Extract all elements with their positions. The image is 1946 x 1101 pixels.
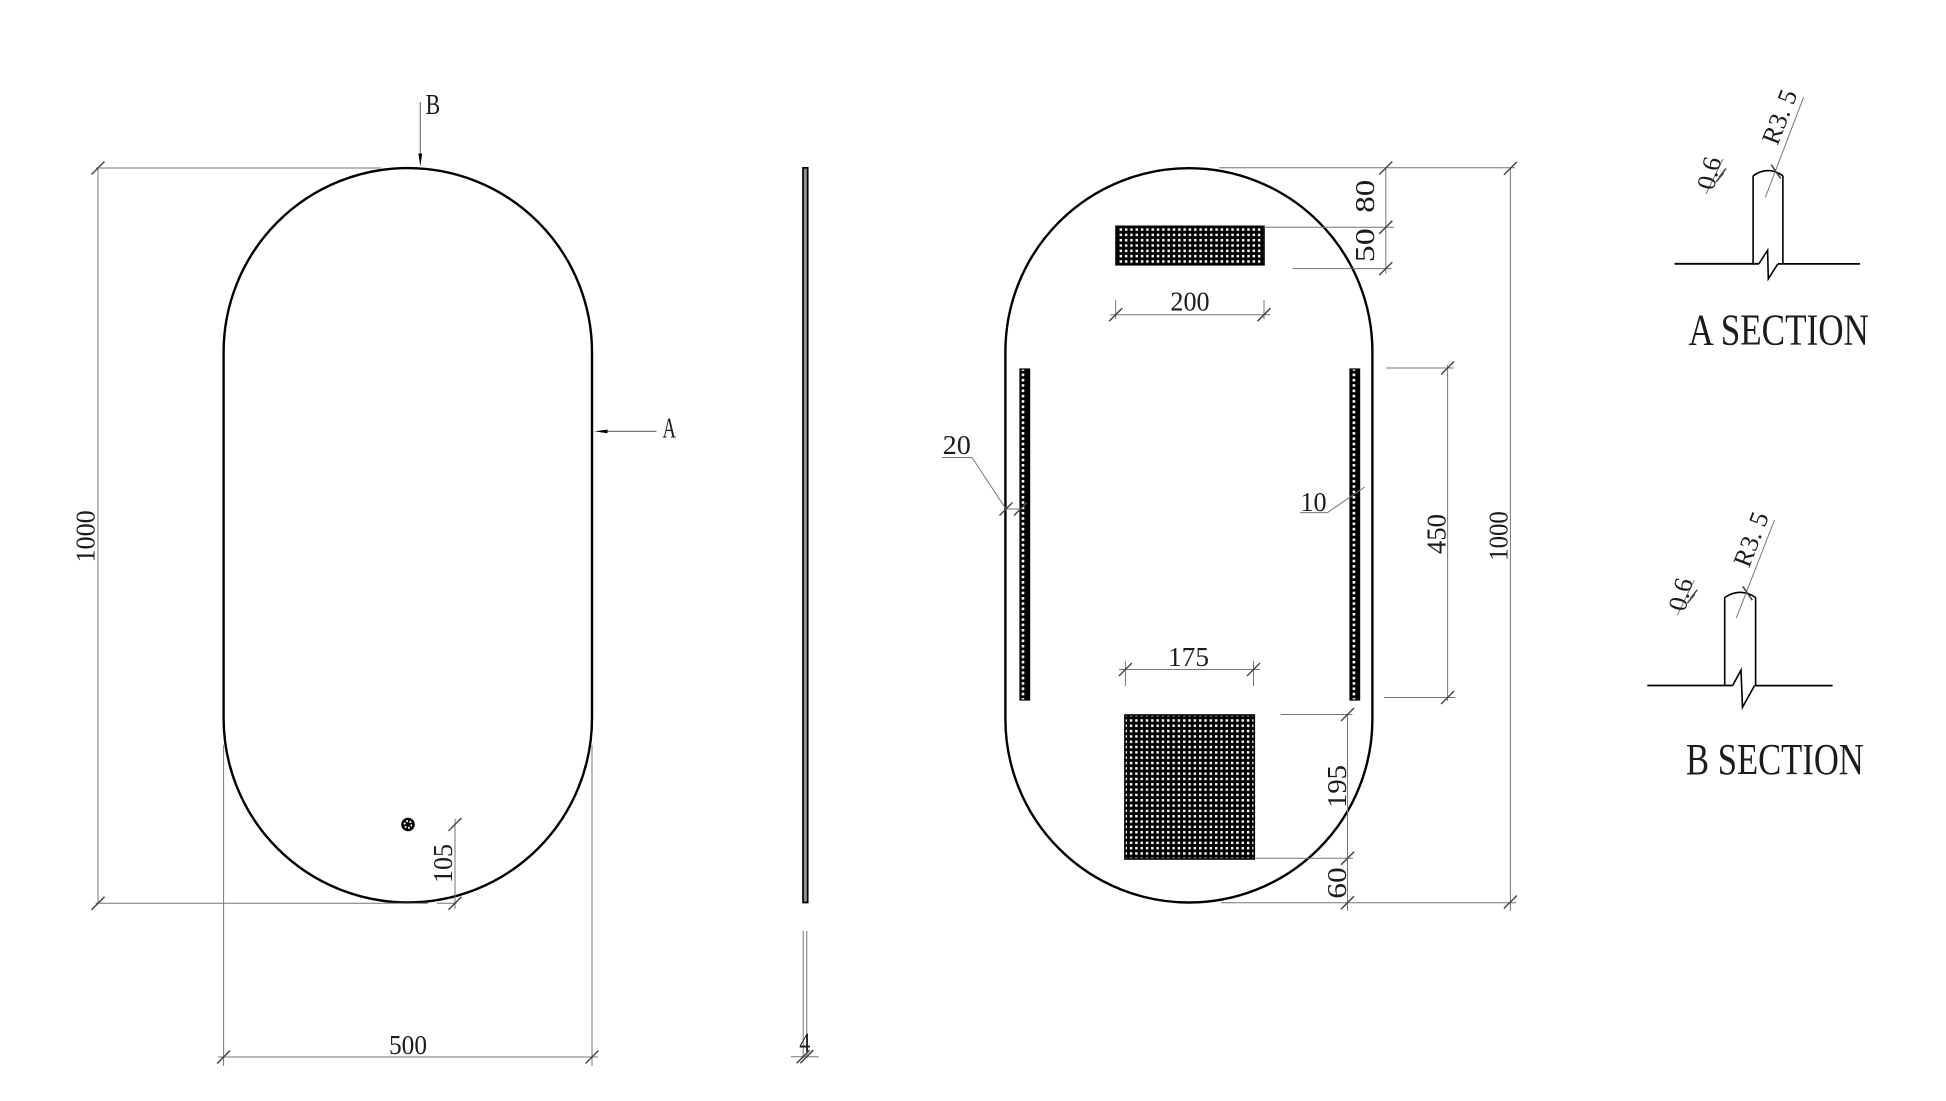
svg-text:450: 450 [1422,514,1452,554]
svg-text:1000: 1000 [1484,511,1514,561]
svg-text:195: 195 [1322,765,1352,808]
svg-text:60: 60 [1322,867,1352,899]
svg-text:1000: 1000 [71,510,101,562]
svg-text:0.6: 0.6 [1691,154,1727,193]
svg-text:500: 500 [389,1030,427,1060]
svg-text:20: 20 [943,430,971,460]
svg-text:4: 4 [799,1028,810,1058]
svg-text:A: A [663,413,677,444]
svg-text:80: 80 [1350,180,1380,213]
svg-text:A SECTION: A SECTION [1689,304,1869,354]
svg-text:200: 200 [1170,287,1209,317]
svg-text:175: 175 [1168,642,1209,672]
svg-text:R3. 5: R3. 5 [1728,508,1775,571]
svg-text:B: B [426,90,441,121]
svg-text:105: 105 [428,844,458,883]
svg-text:B SECTION: B SECTION [1686,734,1864,784]
svg-text:50: 50 [1350,228,1380,262]
svg-text:0.6: 0.6 [1663,575,1699,614]
